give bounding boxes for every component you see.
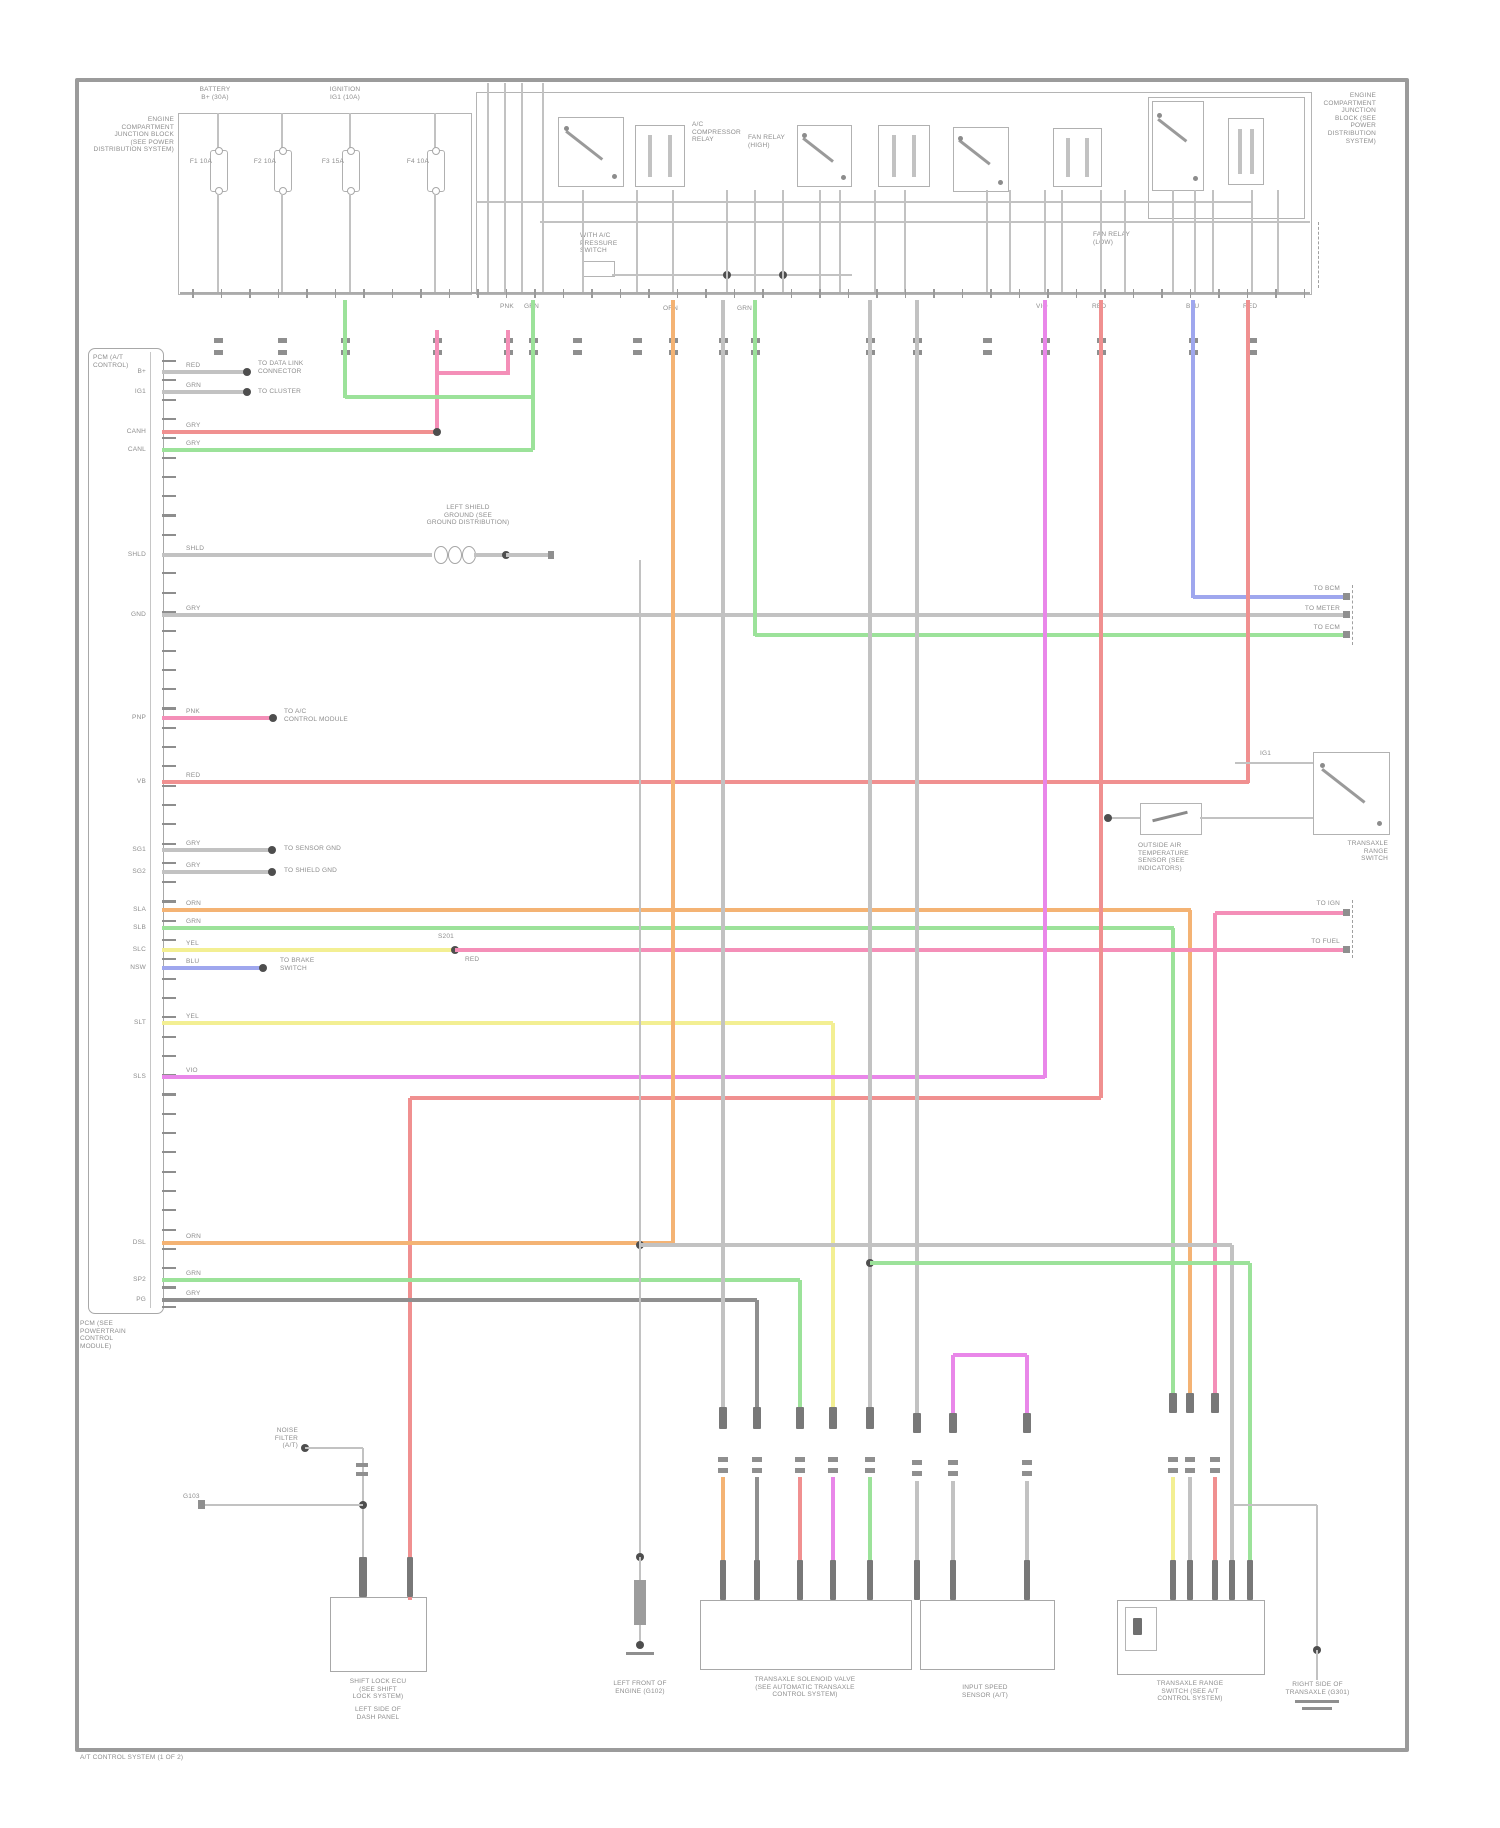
wire-code-label: GRN — [186, 382, 201, 390]
connector-tick — [162, 650, 176, 652]
connector-tick — [983, 338, 992, 343]
gray-wire-h — [640, 1243, 1232, 1246]
connector-tick — [1133, 289, 1135, 298]
connector-pin — [829, 1407, 837, 1429]
red-wire-h — [162, 780, 1249, 783]
gray-wire-v — [721, 300, 724, 1407]
pcm-pin-label: IG1 — [96, 388, 146, 396]
connector-tick — [162, 843, 176, 845]
fuse-label: F2 10A — [236, 158, 276, 166]
magenta-wire-h — [953, 1353, 1027, 1356]
gray-wire-v — [819, 190, 821, 293]
wire-code-label: PNK — [186, 708, 200, 716]
pcm-pin-label: SLB — [96, 924, 146, 932]
connector-tick — [1275, 289, 1277, 298]
shield-ground-label: LEFT SHIELDGROUND (SEEGROUND DISTRIBUTIO… — [408, 504, 528, 527]
junction-dot — [259, 964, 267, 972]
connector-tick — [162, 592, 176, 594]
connector-pin — [359, 1557, 367, 1597]
green-wire-v — [1171, 928, 1174, 1393]
pressure-switch-label: WITH A/CPRESSURESWITCH — [580, 232, 626, 255]
green-wire-h — [162, 926, 1174, 929]
darkgray-wire-v — [755, 1300, 758, 1407]
edge-bracket — [1352, 900, 1353, 958]
connector-pin — [1023, 1413, 1031, 1433]
ground-label: LEFT FRONT OFENGINE (G102) — [560, 1680, 720, 1695]
gray-wire-h — [162, 370, 247, 373]
wire-code-label: ORN — [186, 1233, 201, 1241]
fuse-icon — [342, 150, 360, 192]
pink-wire-v — [506, 330, 509, 375]
gray-wire-v — [1230, 1245, 1233, 1560]
diagram-border — [75, 78, 1409, 1752]
red-wire-v — [1246, 300, 1249, 783]
gray-wire-v — [1044, 190, 1046, 293]
magenta-wire-v — [831, 1477, 834, 1560]
gray-wire-v — [754, 190, 756, 293]
connector-tick — [306, 289, 308, 298]
connector-tick — [1343, 909, 1350, 916]
gray-wire-v — [487, 83, 488, 293]
pcm-pin-label: GND — [96, 611, 146, 619]
wire-code-label: YEL — [186, 1013, 199, 1021]
edge-label-gray: TO METER — [1290, 605, 1340, 613]
orange-wire-h — [162, 1241, 673, 1244]
red-wire-h — [162, 430, 439, 433]
connector-tick — [1104, 289, 1106, 298]
orange-wire-v — [671, 300, 674, 1244]
connector-tick — [162, 1036, 176, 1038]
wire-code-label: RED — [1243, 303, 1257, 311]
gray-wire-h — [162, 553, 432, 556]
gray-wire-h — [305, 1447, 363, 1449]
connector-tick — [1019, 289, 1021, 298]
connector-tick — [1185, 1457, 1195, 1462]
connector-tick — [162, 379, 176, 381]
wire-code-label: YEL — [186, 940, 199, 948]
gray-wire-v — [1009, 190, 1011, 293]
connector-tick — [162, 495, 176, 497]
gray-wire-v — [542, 83, 543, 293]
tr-dashed-line — [1318, 222, 1319, 288]
red-wire-v — [408, 1098, 411, 1557]
connector-tick — [214, 350, 223, 355]
fuse-group2-label: IGNITIONIG1 (10A) — [313, 86, 377, 101]
connector-tick — [221, 289, 223, 298]
connector-pin — [913, 1413, 921, 1433]
gray-wire-v — [349, 113, 351, 150]
pcm-pin-label: PG — [96, 1296, 146, 1304]
ig-label: IG1 — [1260, 750, 1271, 758]
pink-wire-v — [1213, 913, 1216, 1393]
magenta-wire-v — [1043, 300, 1046, 1078]
connector-tick — [162, 630, 176, 632]
green-wire-h — [755, 633, 1344, 636]
connector-tick — [356, 1472, 368, 1476]
junction-block-label: ENGINECOMPARTMENTJUNCTION BLOCK(SEE POWE… — [70, 116, 174, 154]
connector-pin — [753, 1407, 761, 1429]
footer-text: A/T CONTROL SYSTEM (1 OF 2) — [80, 1754, 183, 1762]
connector-tick — [948, 1471, 958, 1476]
green-wire-h — [870, 1261, 1250, 1264]
pcm-pin-label: SG2 — [96, 868, 146, 876]
connector-tick — [865, 1468, 875, 1473]
connector-tick — [162, 399, 176, 401]
gray-wire-v — [582, 190, 584, 293]
edge-label-pink1: TO IGN — [1290, 900, 1340, 908]
gray-wire-v — [951, 1481, 954, 1560]
gray-wire-v — [839, 190, 841, 293]
connector-pin — [830, 1560, 836, 1600]
yellow-wire-v — [1171, 1477, 1174, 1560]
connector-pin — [866, 1407, 874, 1429]
connector-tick — [1343, 946, 1350, 953]
green-wire-h — [345, 395, 533, 398]
connector-tick — [1343, 611, 1350, 618]
connector-tick — [1295, 1700, 1339, 1703]
gray-wire-v — [672, 190, 674, 293]
connector-tick — [162, 707, 176, 709]
splice-label: S201 — [438, 933, 454, 941]
connector-tick — [573, 338, 582, 343]
connector-tick — [762, 289, 764, 298]
pink-wire-v — [435, 330, 438, 375]
wire-code-label: GRY — [186, 605, 201, 613]
splice-color-label: RED — [465, 956, 479, 964]
connector-tick — [912, 1460, 922, 1465]
wire-code-label: RED — [186, 362, 200, 370]
connector-pin — [797, 1560, 803, 1600]
connector-tick — [506, 289, 508, 298]
junction-dot — [243, 368, 251, 376]
air-temp-sensor-label: OUTSIDE AIRTEMPERATURESENSOR (SEEINDICAT… — [1138, 842, 1248, 872]
gray-wire-v — [1251, 190, 1253, 293]
connector-pin — [754, 1560, 760, 1600]
connector-tick — [905, 289, 907, 298]
dash-panel-label: LEFT SIDE OFDASH PANEL — [322, 1706, 434, 1721]
connector-tick — [162, 746, 176, 748]
gray-wire-h — [162, 848, 272, 851]
wiring-diagram-page: ENGINECOMPARTMENTJUNCTION BLOCK(SEE POWE… — [0, 0, 1500, 1828]
edge-label-pink2: TO FUEL — [1290, 938, 1340, 946]
red-wire-v — [1099, 300, 1102, 1098]
darkgray-wire-v — [755, 1477, 758, 1560]
connector-pin — [1186, 1393, 1194, 1413]
range-switch-label: TRANSAXLERANGESWITCH — [1312, 840, 1388, 863]
junction-dot — [636, 1641, 644, 1649]
relay-coil-symbol — [878, 125, 930, 187]
connector-tick — [1185, 1468, 1195, 1473]
connector-tick — [548, 551, 554, 559]
connector-tick — [1190, 289, 1192, 298]
connector-tick — [848, 289, 850, 298]
connector-tick — [162, 1132, 176, 1134]
gray-wire-v — [1316, 1650, 1318, 1680]
connector-pin — [1212, 1560, 1218, 1600]
edge-bracket — [1352, 585, 1353, 645]
junction-dot — [433, 428, 441, 436]
connector-tick — [1304, 289, 1306, 298]
wire-code-label: GRY — [186, 1290, 201, 1298]
connector-tick — [420, 289, 422, 298]
fuse-label: F4 10A — [389, 158, 429, 166]
connector-tick — [278, 338, 287, 343]
connector-pin — [950, 1560, 956, 1600]
connector-tick — [162, 881, 176, 883]
wire-code-label: GRN — [186, 918, 201, 926]
connector-tick — [356, 1463, 368, 1467]
connector-tick — [162, 997, 176, 999]
connector-tick — [198, 1500, 205, 1509]
blue-wire-h — [162, 966, 263, 969]
relay-coil-symbol — [1053, 128, 1102, 187]
noise-filter-label: NOISEFILTER(A/T) — [240, 1427, 298, 1450]
connector-tick — [1210, 1468, 1220, 1473]
pcm-pin-label: PNP — [96, 714, 146, 722]
connector-tick — [162, 514, 176, 516]
pink-wire-h — [1215, 911, 1344, 914]
gray-wire-h — [1200, 817, 1313, 819]
wire-code-label: PNK — [500, 303, 514, 311]
gray-wire-v — [1277, 190, 1279, 293]
connector-tick — [449, 289, 451, 298]
gray-wire-h — [1108, 817, 1140, 819]
gray-wire-v — [281, 194, 283, 293]
input-speed-sensor-label: INPUT SPEEDSENSOR (A/T) — [905, 1684, 1065, 1699]
junction-dot — [268, 846, 276, 854]
connector-tick — [865, 1457, 875, 1462]
red-wire-v — [1213, 1477, 1216, 1560]
connector-tick — [983, 350, 992, 355]
connector-tick — [1302, 1707, 1332, 1710]
pcm-pin-label: VB — [96, 778, 146, 786]
gray-wire-v — [521, 83, 522, 293]
air-temp-sensor — [1140, 803, 1202, 835]
connector-tick — [1210, 1457, 1220, 1462]
connector-tick — [620, 289, 622, 298]
connector-tick — [162, 1248, 176, 1250]
connector-tick — [1218, 289, 1220, 298]
relay-b-label: FAN RELAY(HIGH) — [748, 134, 802, 149]
connector-pin — [720, 1560, 726, 1600]
connector-tick — [752, 1457, 762, 1462]
connector-tick — [278, 289, 280, 298]
connector-tick — [335, 289, 337, 298]
connector-tick — [192, 289, 194, 298]
pcm-connector — [88, 348, 164, 1314]
pcm-inner-line — [150, 352, 151, 1308]
pink-wire-h — [455, 948, 1344, 951]
connector-tick — [1168, 1468, 1178, 1473]
shift-lock-label: SHIFT LOCK ECU(SEE SHIFTLOCK SYSTEM) — [308, 1678, 448, 1701]
connector-tick — [1076, 289, 1078, 298]
edge-label-blue: TO BCM — [1290, 585, 1340, 593]
gray-wire-v — [217, 194, 219, 293]
connector-pin — [1187, 1560, 1193, 1600]
yellow-wire-v — [831, 1023, 834, 1407]
gray-wire-v — [1188, 1477, 1191, 1560]
connector-tick — [828, 1468, 838, 1473]
gray-wire-v — [1061, 190, 1063, 293]
green-wire-v — [343, 300, 346, 398]
orange-wire-v — [721, 1477, 724, 1560]
fuse-group1-label: BATTERYB+ (30A) — [183, 86, 247, 101]
connector-tick — [1047, 289, 1049, 298]
connector-tick — [162, 765, 176, 767]
darkgray-wire-h — [162, 1298, 757, 1301]
gray-wire-v — [726, 190, 728, 293]
connector-tick — [162, 457, 176, 459]
pcm-pin-label: CANH — [96, 428, 146, 436]
orange-wire-v — [1188, 910, 1191, 1393]
connector-tick — [162, 900, 176, 902]
wire-code-label: RED — [186, 772, 200, 780]
yellow-wire-h — [162, 1021, 833, 1024]
connector-tick — [1161, 289, 1163, 298]
connector-tick — [1343, 631, 1350, 638]
gray-wire-v — [915, 1481, 918, 1560]
connector-tick — [573, 350, 582, 355]
relay-switch-symbol — [1152, 101, 1204, 191]
gray-wire-h — [202, 1504, 363, 1506]
wire-code-label: SHLD — [186, 545, 204, 553]
relay-switch-symbol — [953, 127, 1009, 192]
junction-dot — [269, 714, 277, 722]
green-wire-v — [753, 300, 756, 636]
connector-tick — [162, 688, 176, 690]
wire-code-label: GRY — [186, 422, 201, 430]
stub-label-shld: TO SHIELD GND — [284, 867, 364, 875]
connector-tick — [912, 1471, 922, 1476]
gray-wire-h — [162, 390, 247, 393]
wire-code-label: GRN — [186, 1270, 201, 1278]
connector-tick — [162, 360, 176, 362]
connector-tick — [162, 1151, 176, 1153]
gray-wire-v — [1100, 190, 1102, 293]
yellow-wire-h — [162, 948, 455, 951]
red-wire-v — [798, 1477, 801, 1560]
connector-tick — [162, 939, 176, 941]
solenoid-valve-box — [700, 1600, 912, 1670]
gray-wire-h — [612, 274, 852, 276]
connector-pin — [949, 1413, 957, 1433]
wire-code-label: BLU — [186, 958, 199, 966]
pcm-pin-label: CANL — [96, 446, 146, 454]
connector-tick — [563, 289, 565, 298]
connector-tick — [162, 978, 176, 980]
connector-tick — [162, 958, 176, 960]
transaxle-ground-label: RIGHT SIDE OFTRANSAXLE (G301) — [1260, 1681, 1375, 1696]
gray-wire-h — [1233, 1504, 1317, 1506]
wire-code-label: ORN — [186, 900, 201, 908]
orange-wire-h — [162, 908, 1191, 911]
connector-tick — [876, 289, 878, 298]
gray-wire-v — [217, 113, 219, 150]
gray-wire-h — [476, 201, 1253, 202]
magenta-wire-h — [162, 1075, 1045, 1078]
range-switch-box-label: TRANSAXLE RANGESWITCH (SEE A/TCONTROL SY… — [1110, 1680, 1270, 1703]
blue-wire-v — [1191, 300, 1194, 598]
green-wire-v — [1248, 1263, 1251, 1560]
connector-tick — [162, 437, 176, 439]
connector-tick — [162, 1209, 176, 1211]
gray-wire-v — [1194, 190, 1196, 293]
gray-wire-v — [904, 190, 906, 293]
connector-tick — [718, 1468, 728, 1473]
connector-tick — [363, 289, 365, 298]
connector-tick — [392, 289, 394, 298]
connector-tick — [162, 1093, 176, 1095]
gray-wire-v — [636, 190, 638, 293]
pcm-pin-label: SLS — [96, 1073, 146, 1081]
gray-wire-v — [782, 190, 784, 293]
connector-tick — [162, 823, 176, 825]
gray-wire-v — [874, 190, 876, 293]
pcm-pin-label: SHLD — [96, 551, 146, 559]
pressure-switch-symbol — [583, 261, 615, 277]
connector-tick — [162, 862, 176, 864]
stub-label-dlc: TO DATA LINKCONNECTOR — [258, 360, 328, 375]
connector-tick — [828, 1457, 838, 1462]
pink-wire-h — [437, 371, 508, 374]
stub-label-sg: TO SENSOR GND — [284, 845, 364, 853]
connector-tick — [278, 350, 287, 355]
connector-tick — [162, 476, 176, 478]
wire-code-label: VIO — [186, 1067, 198, 1075]
connector-pin — [1169, 1393, 1177, 1413]
connector-tick — [633, 338, 642, 343]
pink-wire-v — [435, 373, 438, 434]
wire-code-label: GRN — [737, 305, 752, 313]
connector-pin — [867, 1560, 873, 1600]
connector-tick — [819, 289, 821, 298]
range-switch-element — [1133, 1618, 1142, 1635]
edge-label-green: TO ECM — [1290, 624, 1340, 632]
connector-tick — [634, 1580, 646, 1625]
pcm-pin-label: SG1 — [96, 846, 146, 854]
gray-wire-v — [349, 194, 351, 293]
connector-tick — [162, 1267, 176, 1269]
connector-tick — [162, 1190, 176, 1192]
gray-wire-v — [1316, 1505, 1318, 1650]
connector-tick — [591, 289, 593, 298]
junction-dot — [1104, 814, 1112, 822]
connector-tick — [677, 289, 679, 298]
connector-pin — [407, 1557, 413, 1597]
gray-wire-v — [281, 113, 283, 150]
connector-tick — [1168, 1457, 1178, 1462]
fuse-icon — [427, 150, 445, 192]
connector-tick — [162, 418, 176, 420]
stub-label-ac: TO A/CCONTROL MODULE — [284, 708, 364, 723]
connector-tick — [626, 1652, 654, 1655]
connector-tick — [534, 289, 536, 298]
connector-pin — [1229, 1560, 1235, 1600]
red-wire-h — [410, 1096, 1101, 1099]
connector-tick — [249, 289, 251, 298]
shift-lock-box — [330, 1597, 427, 1672]
connector-tick — [477, 289, 479, 298]
solenoid-valve-label: TRANSAXLE SOLENOID VALVE(SEE AUTOMATIC T… — [705, 1676, 905, 1699]
pcm-pin-label: NSW — [96, 964, 146, 972]
wire-code-label: GRY — [186, 440, 201, 448]
connector-tick — [162, 669, 176, 671]
connector-tick — [795, 1457, 805, 1462]
connector-tick — [795, 1468, 805, 1473]
connector-tick — [633, 350, 642, 355]
pink-wire-h — [162, 716, 273, 719]
connector-tick — [734, 289, 736, 298]
